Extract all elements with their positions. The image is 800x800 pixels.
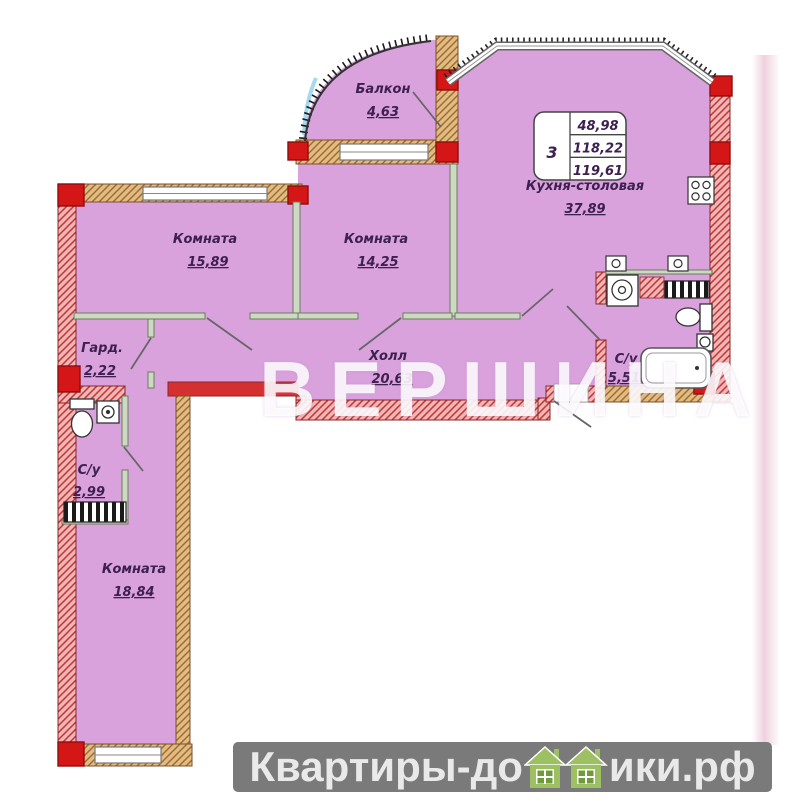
wall-left-outer	[58, 184, 76, 766]
room-label: Гард.	[81, 341, 123, 356]
info-floor-area: 118,22	[573, 142, 623, 157]
info-box: 3 48,98 118,22 119,61	[534, 112, 626, 180]
house-icon	[524, 744, 608, 790]
wing-floor	[62, 390, 178, 764]
window-balcony-door	[340, 144, 428, 160]
area-label: 37,89	[564, 202, 605, 217]
shaft-icon	[64, 502, 126, 522]
area-label: 18,84	[113, 585, 154, 600]
floor-plan-page: 3 48,98 118,22 119,61 Балкон 4,63 Комнат…	[0, 0, 800, 800]
info-living-area: 48,98	[576, 119, 618, 134]
wall-bath-left-upper	[596, 272, 606, 304]
washing-machine-icon	[607, 275, 638, 306]
wall-wing-right	[176, 396, 190, 764]
info-total-area: 119,61	[573, 164, 623, 179]
window-wing	[95, 747, 161, 763]
footer-bar: Квартиры-до ики.рф	[233, 742, 772, 792]
toilet-icon	[70, 399, 94, 437]
house-icon	[566, 747, 606, 788]
area-label: 14,25	[357, 255, 398, 270]
room-label: Балкон	[356, 82, 411, 97]
footer-text-right: ики.рф	[609, 743, 756, 791]
radiator-icon	[665, 281, 709, 298]
room-1-floor	[74, 200, 296, 318]
footer-text-left: Квартиры-до	[249, 743, 523, 791]
area-label: 4,63	[366, 105, 399, 120]
area-label: 2,22	[84, 364, 116, 379]
window-room1	[143, 187, 267, 200]
sink-icon	[97, 401, 119, 423]
info-rooms-count: 3	[546, 143, 557, 162]
stove-icon	[688, 177, 714, 204]
room-label: Комната	[173, 232, 237, 247]
counter-hatch	[640, 277, 664, 298]
area-label: 15,89	[187, 255, 228, 270]
room-label: Комната	[102, 562, 166, 577]
watermark-text: ВЕРШИНА	[212, 350, 800, 428]
room-label: Комната	[344, 232, 408, 247]
house-icon	[525, 747, 565, 788]
room-label: Кухня-столовая	[526, 179, 644, 194]
room-label: С/у	[78, 463, 101, 478]
area-label: 2,99	[73, 485, 105, 500]
